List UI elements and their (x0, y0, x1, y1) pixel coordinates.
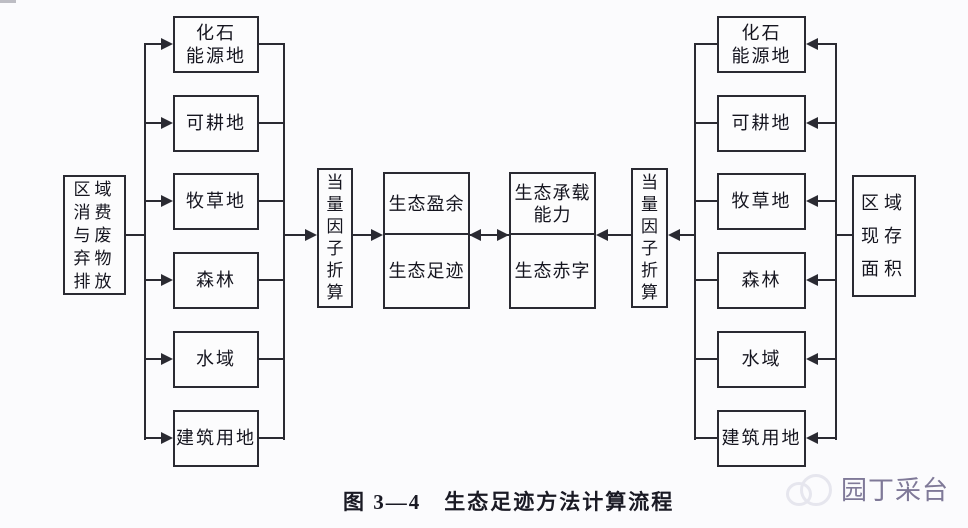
cell-ecological-carrying-capacity: 生态承载 能力 (511, 174, 594, 235)
box-left-equivalence-factor-conversion: 当 量 因 子 折 算 (317, 168, 353, 308)
figure-canvas: 区域 消费 与废 弃物 排放 化石 能源地 可耕地 牧草地 森林 水域 建筑用地… (0, 0, 968, 528)
arrowhead-right-icon (161, 274, 173, 286)
connector-line (259, 43, 285, 45)
box-label: 森林 (196, 269, 236, 292)
arrowhead-right-icon (161, 353, 173, 365)
arrowhead-right-icon (161, 38, 173, 50)
arrowhead-left-icon (469, 229, 481, 241)
connector-line (818, 437, 837, 439)
arrowhead-right-icon (161, 195, 173, 207)
box-right-water-area: 水域 (717, 331, 806, 388)
connector-line (146, 437, 162, 439)
connector-line (259, 437, 285, 439)
arrowhead-left-icon (806, 353, 818, 365)
arrowhead-right-icon (497, 229, 509, 241)
box-right-arable-land: 可耕地 (717, 95, 806, 152)
box-left-built-up-land: 建筑用地 (173, 410, 259, 467)
box-label: 可耕地 (732, 112, 792, 135)
connector-line (146, 200, 162, 202)
box-capacity-deficit: 生态承载 能力 生态赤字 (509, 172, 596, 309)
box-regional-consumption-waste: 区域 消费 与废 弃物 排放 (63, 175, 126, 295)
box-right-fossil-energy-land: 化石 能源地 (717, 16, 806, 73)
arrowhead-left-icon (806, 274, 818, 286)
cell-ecological-deficit: 生态赤字 (511, 235, 594, 307)
cell-label: 生态承载 能力 (515, 182, 591, 226)
box-label: 可耕地 (186, 112, 246, 135)
box-right-built-up-land: 建筑用地 (717, 410, 806, 467)
connector-line (146, 358, 162, 360)
box-regional-existing-area: 区域 现存 面积 (852, 175, 916, 297)
cell-ecological-surplus: 生态盈余 (385, 174, 468, 235)
box-label: 牧草地 (186, 190, 246, 213)
box-left-pasture-land: 牧草地 (173, 173, 259, 230)
watermark-logo-icon (786, 470, 838, 510)
arrowhead-right-icon (161, 432, 173, 444)
connector-line (146, 279, 162, 281)
box-label: 区域 现存 面积 (861, 187, 907, 286)
connector-line (285, 234, 306, 236)
arrowhead-left-icon (806, 195, 818, 207)
arrowhead-left-icon (806, 432, 818, 444)
box-label: 建筑用地 (722, 427, 802, 450)
left-collection-bus-line (283, 43, 285, 440)
box-right-equivalence-factor-conversion: 当 量 因 子 折 算 (631, 168, 668, 308)
box-left-arable-land: 可耕地 (173, 95, 259, 152)
right-collection-bus-line (694, 43, 696, 440)
box-left-fossil-energy-land: 化石 能源地 (173, 16, 259, 73)
box-label: 牧草地 (732, 190, 792, 213)
box-label: 水域 (196, 348, 236, 371)
box-right-forest: 森林 (717, 252, 806, 309)
cell-label: 生态足迹 (389, 260, 465, 282)
box-label: 区域 消费 与废 弃物 排放 (74, 178, 116, 293)
arrowhead-right-icon (371, 229, 383, 241)
connector-line (696, 279, 717, 281)
watermark-text: 园丁采台 (841, 470, 949, 507)
connector-line (259, 200, 285, 202)
connector-line (259, 358, 285, 360)
connector-line (146, 43, 162, 45)
arrowhead-left-icon (806, 117, 818, 129)
connector-line (126, 234, 146, 236)
connector-line (607, 234, 631, 236)
connector-line (696, 122, 717, 124)
scan-artifact (0, 0, 16, 3)
box-label: 水域 (742, 348, 782, 371)
connector-line (818, 200, 837, 202)
connector-line (818, 279, 837, 281)
left-distribution-bus-line (144, 43, 146, 440)
cell-ecological-footprint: 生态足迹 (385, 235, 468, 307)
box-right-pasture-land: 牧草地 (717, 173, 806, 230)
box-label: 森林 (742, 269, 782, 292)
box-label: 化石 能源地 (186, 22, 246, 68)
connector-line (259, 122, 285, 124)
cell-label: 生态盈余 (389, 193, 465, 215)
box-left-water-area: 水域 (173, 331, 259, 388)
connector-line (146, 122, 162, 124)
box-label: 当 量 因 子 折 算 (327, 172, 344, 304)
arrowhead-right-icon (305, 229, 317, 241)
connector-line (818, 122, 837, 124)
connector-line (837, 234, 852, 236)
arrowhead-right-icon (161, 117, 173, 129)
box-label: 化石 能源地 (732, 22, 792, 68)
box-surplus-footprint: 生态盈余 生态足迹 (383, 172, 470, 309)
cell-label: 生态赤字 (515, 260, 591, 282)
connector-line (696, 200, 717, 202)
connector-line (353, 234, 372, 236)
connector-line (818, 358, 837, 360)
arrowhead-left-icon (806, 38, 818, 50)
box-label: 建筑用地 (176, 427, 256, 450)
connector-line (696, 437, 717, 439)
connector-line (696, 43, 717, 45)
right-distribution-bus-line (835, 43, 837, 440)
connector-line (259, 279, 285, 281)
figure-caption: 图 3—4 生态足迹方法计算流程 (343, 486, 674, 516)
box-label: 当 量 因 子 折 算 (641, 172, 658, 304)
box-left-forest: 森林 (173, 252, 259, 309)
connector-line (696, 358, 717, 360)
connector-line (679, 234, 696, 236)
connector-line (818, 43, 837, 45)
